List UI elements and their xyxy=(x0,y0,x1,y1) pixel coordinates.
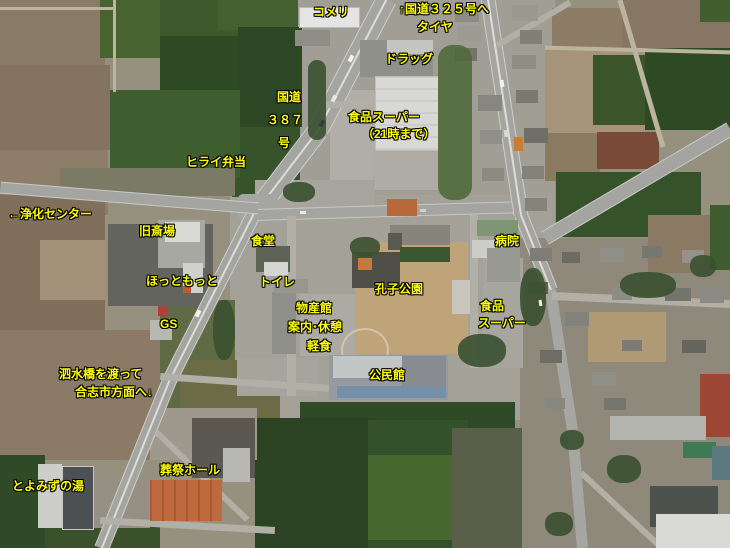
map-label-komeri: コメリ xyxy=(313,6,349,20)
map-label-route387-line1: 国道 xyxy=(277,91,301,105)
roof xyxy=(480,130,502,144)
field-patch xyxy=(40,240,105,300)
map-label-toyomizu-yu: とよみずの湯 xyxy=(12,480,84,494)
tree xyxy=(545,512,573,536)
roof xyxy=(522,166,544,179)
building-orange-roadside xyxy=(387,199,417,216)
building-gas-station-sign xyxy=(158,306,167,316)
map-label-route325: ↑国道３２５号へ xyxy=(399,3,489,17)
building-warehouse xyxy=(610,416,706,440)
map-label-supermarket-center-line1: 食品スーパー xyxy=(348,111,420,125)
roof xyxy=(524,128,548,143)
roof xyxy=(565,312,589,326)
roof xyxy=(700,288,724,303)
roof xyxy=(604,398,626,410)
map-label-supermarket-right-line2: スーパー xyxy=(478,317,526,331)
field-patch xyxy=(597,132,659,169)
building-park-east xyxy=(452,280,470,314)
building-kominkan-wing xyxy=(402,356,446,386)
building-white-corner xyxy=(656,514,730,548)
map-label-hirai-bento: ヒライ弁当 xyxy=(186,156,246,170)
roof xyxy=(642,246,662,258)
parking-lot-supermarket-south xyxy=(373,148,440,190)
roof xyxy=(592,372,616,386)
map-label-tire: タイヤ xyxy=(417,21,453,35)
satellite-map: コメリ ↑国道３２５号へ タイヤ ドラッグ 国道 ３８７ 号 食品スーパー （2… xyxy=(0,0,730,548)
tree xyxy=(607,455,641,483)
parking-lot-kominkan xyxy=(237,358,318,396)
building-orange-small-east xyxy=(514,137,523,151)
roof xyxy=(520,30,542,44)
roof xyxy=(562,252,580,263)
map-label-route387-line2: ３８７ xyxy=(267,114,303,128)
building-toyomizu-dark xyxy=(62,466,94,530)
roof xyxy=(512,5,538,21)
building-confucius-gate xyxy=(358,258,372,270)
vehicle xyxy=(300,211,306,214)
map-label-shisui-line2: 合志市方面へ↓ xyxy=(75,386,153,400)
tree xyxy=(213,300,235,360)
field-patch xyxy=(552,8,622,48)
field-patch xyxy=(368,455,452,540)
field-patch xyxy=(238,27,302,127)
map-label-annai-kyukei: 案内･休憩 xyxy=(288,321,342,335)
building-toilet xyxy=(264,262,288,276)
tree-strip xyxy=(438,45,472,200)
map-label-supermarket-right-line1: 食品 xyxy=(480,300,504,314)
roof xyxy=(516,90,538,103)
map-label-koshi-park: 孔子公園 xyxy=(375,283,423,297)
roof xyxy=(540,350,562,363)
field-patch xyxy=(645,48,730,130)
field-patch xyxy=(452,428,522,548)
map-label-gs: GS xyxy=(160,318,177,332)
tree xyxy=(308,60,326,140)
tree xyxy=(560,430,584,450)
map-label-keishoku: 軽食 xyxy=(307,340,331,354)
building-toyomizu-white xyxy=(38,464,62,528)
tree xyxy=(350,237,380,257)
roof xyxy=(530,248,552,261)
building-kominkan-solar-strip xyxy=(337,386,446,398)
map-label-hospital: 病院 xyxy=(495,235,519,249)
roof xyxy=(600,248,624,262)
building-sosai-orange xyxy=(150,480,222,521)
bare-dirt-patch xyxy=(588,312,666,362)
map-label-kominkan: 公民館 xyxy=(369,369,405,383)
tree xyxy=(690,255,716,277)
building-small xyxy=(295,30,330,46)
building-gray-south-hospital xyxy=(487,248,520,282)
map-label-route387-line3: 号 xyxy=(278,137,290,151)
road-supermarket-access xyxy=(322,101,368,108)
map-label-kyu-saijo: 旧斎場 xyxy=(139,225,175,239)
map-label-drug: ドラッグ xyxy=(385,53,433,67)
tree xyxy=(283,182,315,202)
farm-road-topleft-h xyxy=(0,7,115,10)
roof xyxy=(482,168,504,181)
vehicle xyxy=(420,209,426,212)
tree xyxy=(620,272,676,298)
roof xyxy=(622,340,642,351)
farm-road-topleft-v xyxy=(113,0,116,92)
map-label-toilet: トイレ xyxy=(259,276,295,290)
roof xyxy=(525,198,547,211)
roof xyxy=(545,398,565,409)
roof xyxy=(512,55,536,69)
park-hedge xyxy=(400,247,450,262)
building-sosai-light xyxy=(223,448,250,482)
map-label-sosai-hall: 葬祭ホール xyxy=(160,464,220,478)
roof xyxy=(682,340,706,353)
roof xyxy=(478,95,502,111)
tree xyxy=(458,334,506,367)
map-label-shisui-line1: 泗水橋を渡って xyxy=(59,368,142,382)
building-tire-shop xyxy=(457,26,481,41)
building-teal-edge xyxy=(712,446,730,480)
map-label-jouka-center: ←浄化センター xyxy=(8,208,92,222)
map-label-hotto-motto: ほっともっと xyxy=(146,275,218,289)
map-label-supermarket-center-line2: （21時まで） xyxy=(362,128,435,142)
field-patch xyxy=(218,0,298,30)
field-patch xyxy=(0,65,110,150)
field-patch xyxy=(700,0,730,22)
map-label-shokudo: 食堂 xyxy=(251,235,275,249)
map-label-bussankan: 物産館 xyxy=(296,302,332,316)
